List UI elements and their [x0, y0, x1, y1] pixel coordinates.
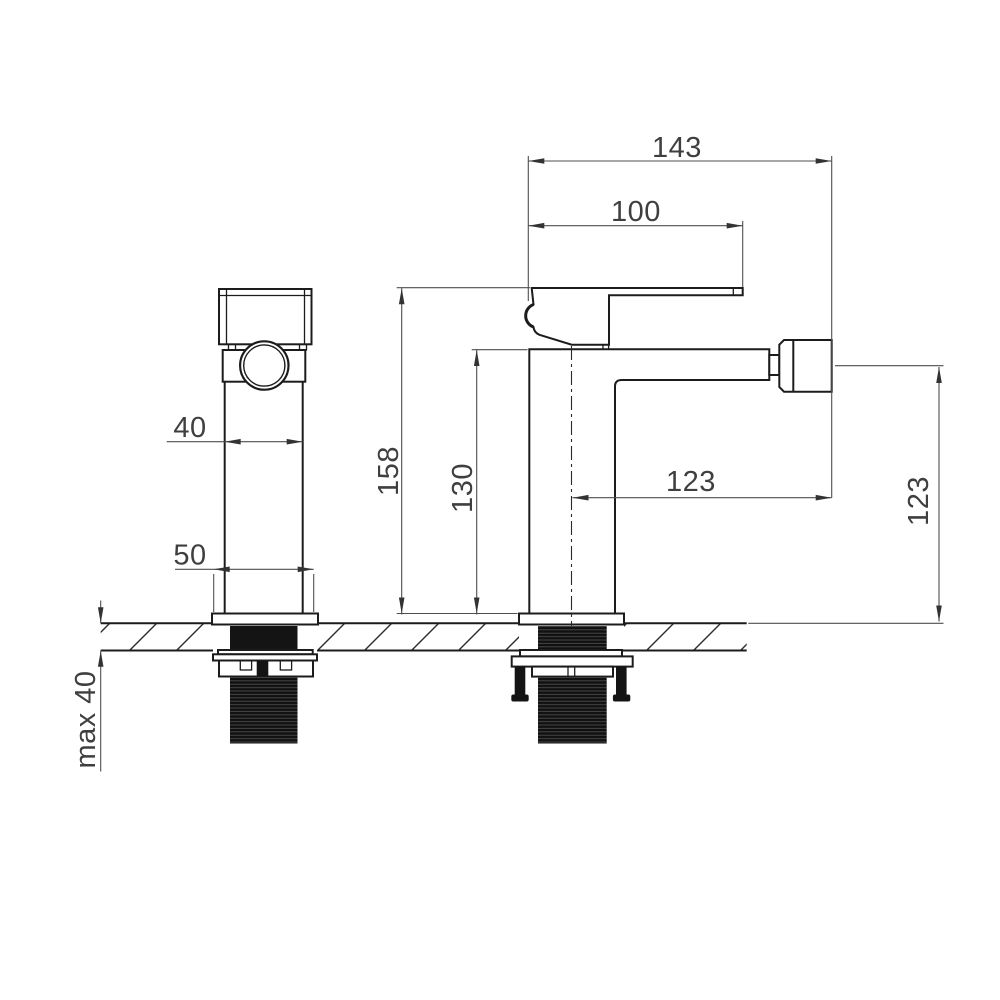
- dimension-base-width: 50: [173, 540, 313, 613]
- dim-label-base-width: 50: [173, 540, 206, 572]
- threaded-collar: [538, 626, 607, 650]
- dim-label-handle-length: 100: [611, 196, 661, 228]
- dimensions: 143 100 40 50: [70, 132, 944, 772]
- dim-label-max-counter-thickness: max 40: [70, 670, 102, 768]
- countertop-section: [80, 621, 770, 653]
- mounting-stud: [616, 667, 627, 695]
- dimension-body-width: 40: [167, 412, 303, 445]
- dimension-body-height: 130: [447, 350, 528, 615]
- lever-handle: [526, 288, 743, 345]
- dim-label-overall-height: 158: [373, 446, 405, 496]
- threaded-shank: [230, 677, 298, 744]
- dimension-max-counter-thickness: max 40: [70, 601, 104, 772]
- stud-nut: [511, 695, 528, 702]
- stud-nut: [613, 695, 630, 702]
- dim-label-spout-height: 123: [903, 476, 935, 526]
- dimension-spout-height: 123: [748, 366, 943, 624]
- dimension-handle-length: 100: [528, 196, 742, 287]
- flange-washer: [512, 656, 633, 666]
- handle-pivot-circle: [240, 341, 288, 389]
- dim-label-body-height: 130: [447, 463, 479, 513]
- mounting-stud: [515, 667, 526, 695]
- body-and-spout: [529, 349, 769, 613]
- dimension-overall-height: 158: [373, 288, 530, 615]
- aerator: [779, 340, 831, 392]
- faucet-front-view: [212, 289, 318, 744]
- base-plate: [212, 614, 318, 625]
- spout-neck: [769, 355, 779, 375]
- faucet-dimension-drawing: 143 100 40 50: [0, 0, 1000, 1000]
- handle-front: [219, 289, 312, 344]
- threaded-shank: [538, 677, 607, 744]
- dim-label-overall-length: 143: [652, 132, 702, 164]
- dim-label-spout-reach: 123: [666, 466, 716, 498]
- countertop-hatching: [80, 621, 770, 653]
- dim-label-body-width: 40: [173, 412, 206, 444]
- threaded-collar: [230, 626, 298, 650]
- faucet-side-view: [511, 288, 831, 744]
- lock-nut: [532, 667, 613, 677]
- technical-drawing-page: 143 100 40 50: [0, 0, 1000, 1000]
